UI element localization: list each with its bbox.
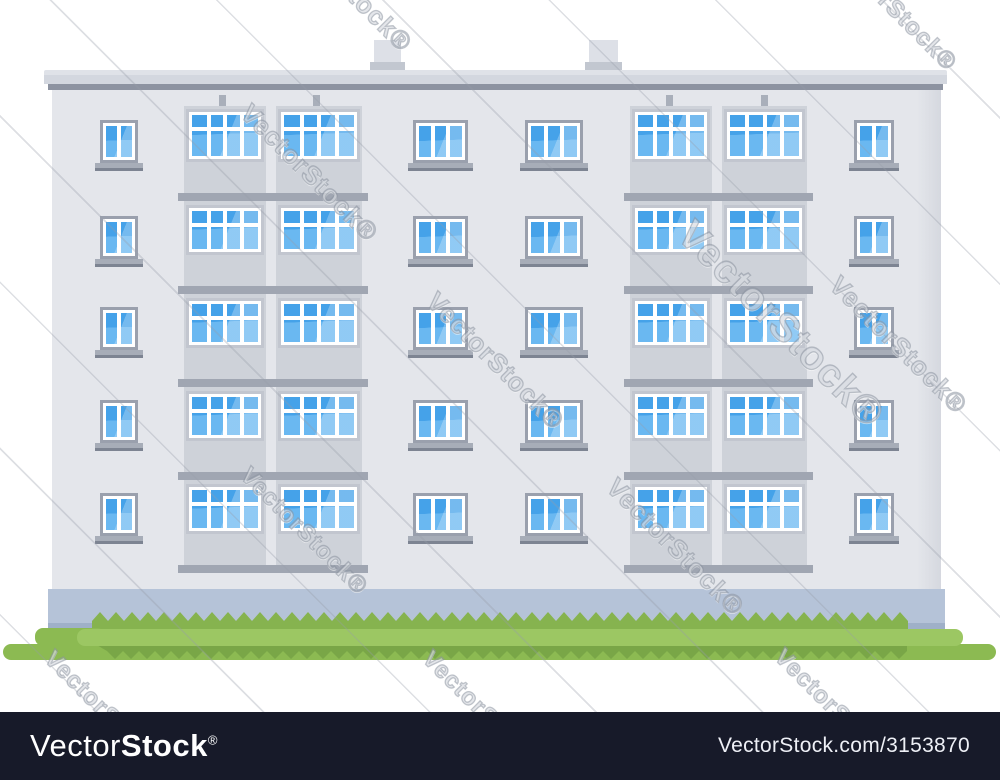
watermark-text: VectorStock®: [234, 462, 373, 601]
watermark-text: VectorStock®: [823, 0, 962, 77]
logo-text-light: Vector: [30, 728, 121, 763]
watermark-text: VectorStock®: [668, 212, 893, 437]
vectorstock-footer-bar: VectorStock® VectorStock.com/3153870: [0, 712, 1000, 780]
vectorstock-logo: VectorStock®: [30, 728, 218, 764]
logo-text-bold: Stock: [121, 728, 208, 763]
watermark-layer: VectorStock®VectorStock®VectorStock®Vect…: [0, 0, 1000, 780]
watermark-text: VectorStock®: [420, 286, 570, 436]
vectorstock-url: VectorStock.com/3153870: [718, 734, 970, 758]
watermark-text: VectorStock®: [600, 472, 750, 622]
watermark-text: VectorStock®: [268, 0, 418, 58]
watermark-text: VectorStock®: [823, 270, 973, 420]
registered-mark: ®: [208, 733, 218, 748]
watermark-text: VectorStock®: [234, 98, 384, 248]
illustration-scene: VectorStock®VectorStock®VectorStock®Vect…: [0, 0, 1000, 780]
